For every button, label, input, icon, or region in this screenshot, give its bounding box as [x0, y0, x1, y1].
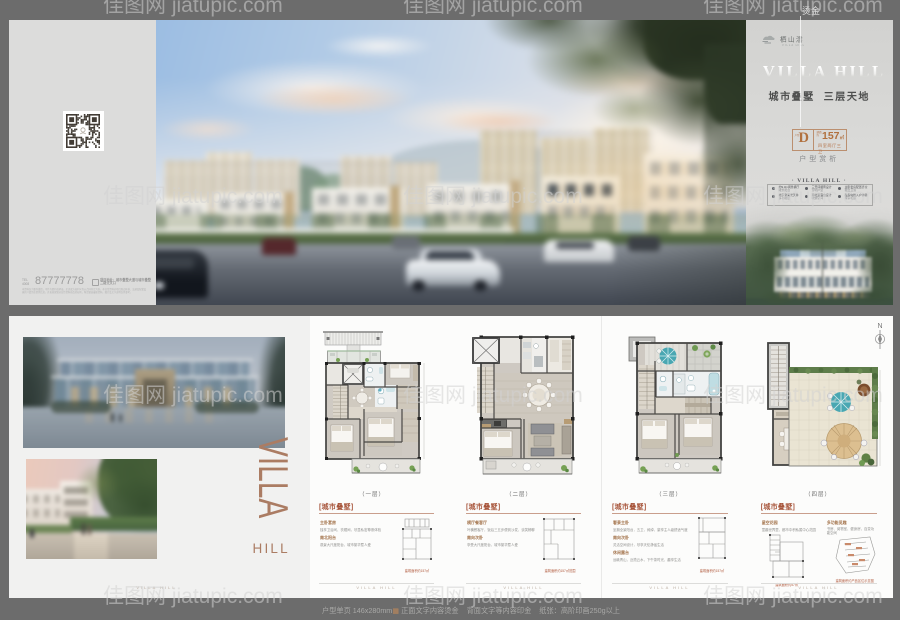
svg-text:VILLA HILL: VILLA HILL [782, 43, 805, 47]
